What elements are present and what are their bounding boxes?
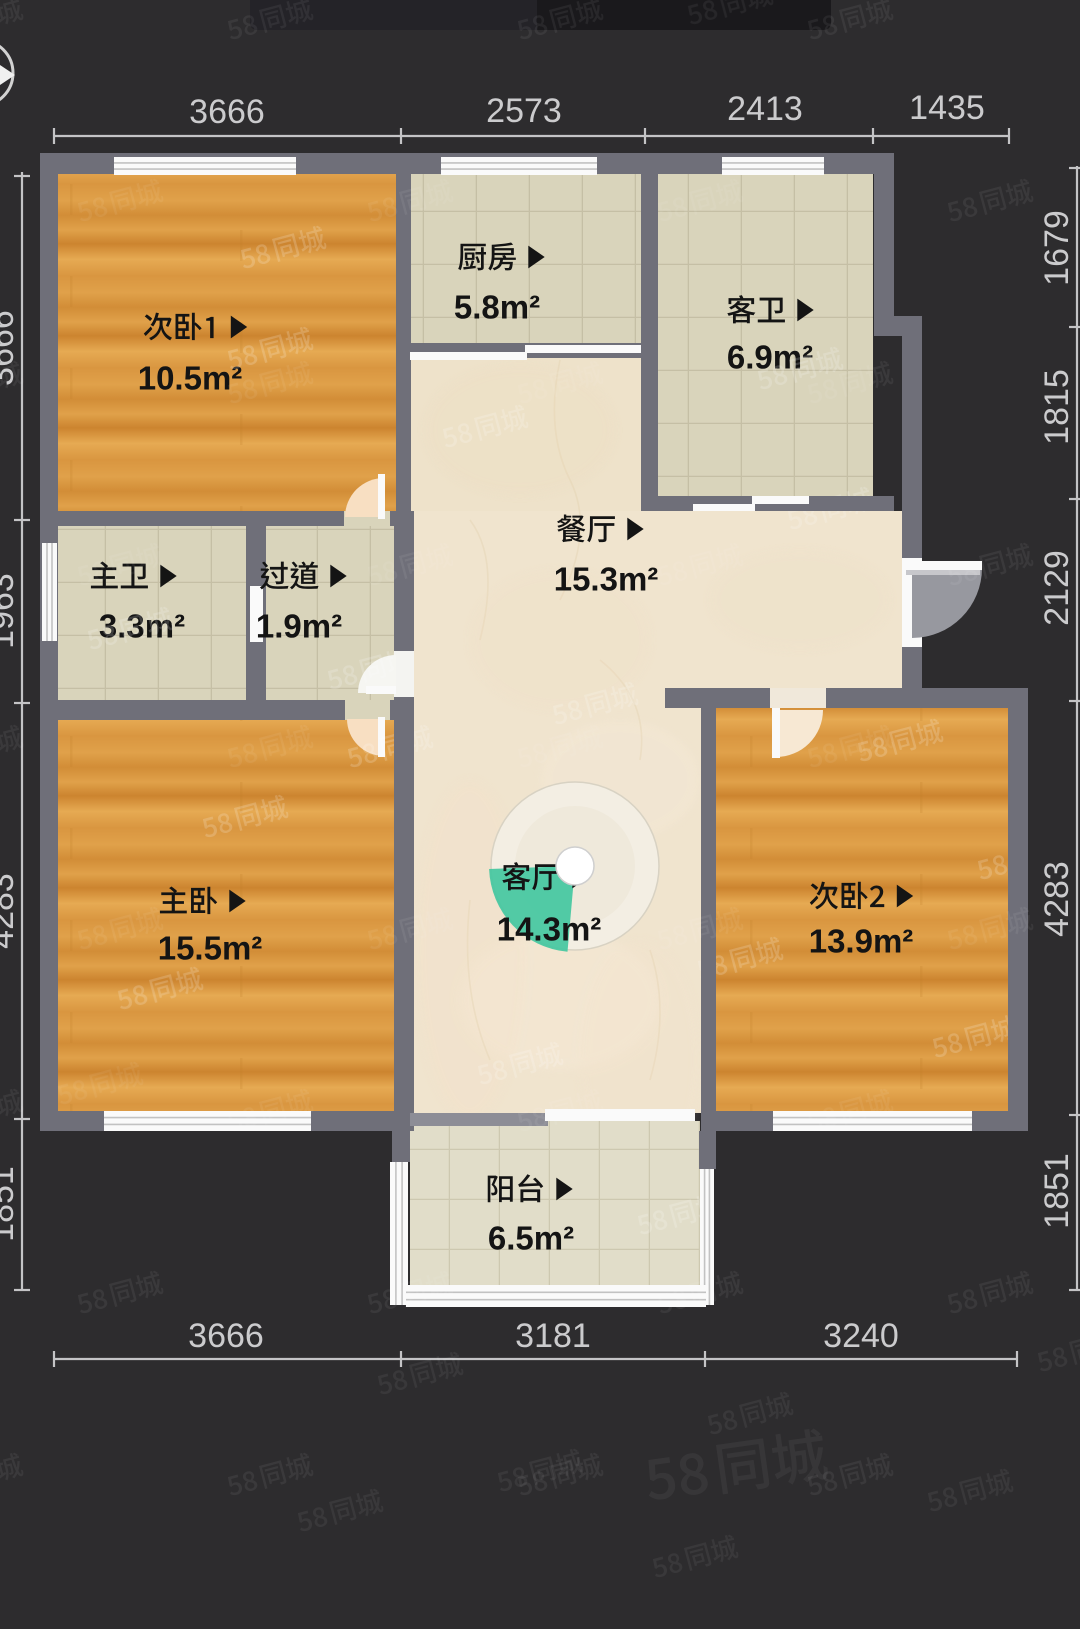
svg-text:15.3m²: 15.3m²: [554, 561, 659, 598]
svg-text:6.5m²: 6.5m²: [488, 1220, 574, 1257]
svg-text:3666: 3666: [189, 93, 265, 131]
svg-text:13.9m²: 13.9m²: [809, 923, 914, 960]
svg-text:1963: 1963: [0, 573, 21, 649]
svg-text:1.9m²: 1.9m²: [256, 608, 342, 645]
svg-text:4283: 4283: [0, 873, 21, 949]
svg-text:1851: 1851: [0, 1166, 21, 1242]
svg-text:15.5m²: 15.5m²: [158, 930, 263, 967]
svg-text:3181: 3181: [515, 1317, 591, 1355]
svg-text:3240: 3240: [823, 1317, 899, 1355]
svg-text:10.5m²: 10.5m²: [138, 360, 243, 397]
svg-text:4283: 4283: [1038, 861, 1076, 937]
svg-text:2413: 2413: [727, 90, 803, 128]
svg-text:2129: 2129: [1038, 550, 1076, 626]
svg-text:3666: 3666: [188, 1317, 264, 1355]
svg-text:1815: 1815: [1038, 369, 1076, 445]
svg-text:1435: 1435: [909, 89, 985, 127]
svg-text:1679: 1679: [1038, 210, 1076, 286]
svg-text:5.8m²: 5.8m²: [454, 289, 540, 326]
svg-text:2573: 2573: [486, 92, 562, 130]
svg-text:14.3m²: 14.3m²: [497, 911, 602, 948]
svg-text:1851: 1851: [1038, 1153, 1076, 1229]
